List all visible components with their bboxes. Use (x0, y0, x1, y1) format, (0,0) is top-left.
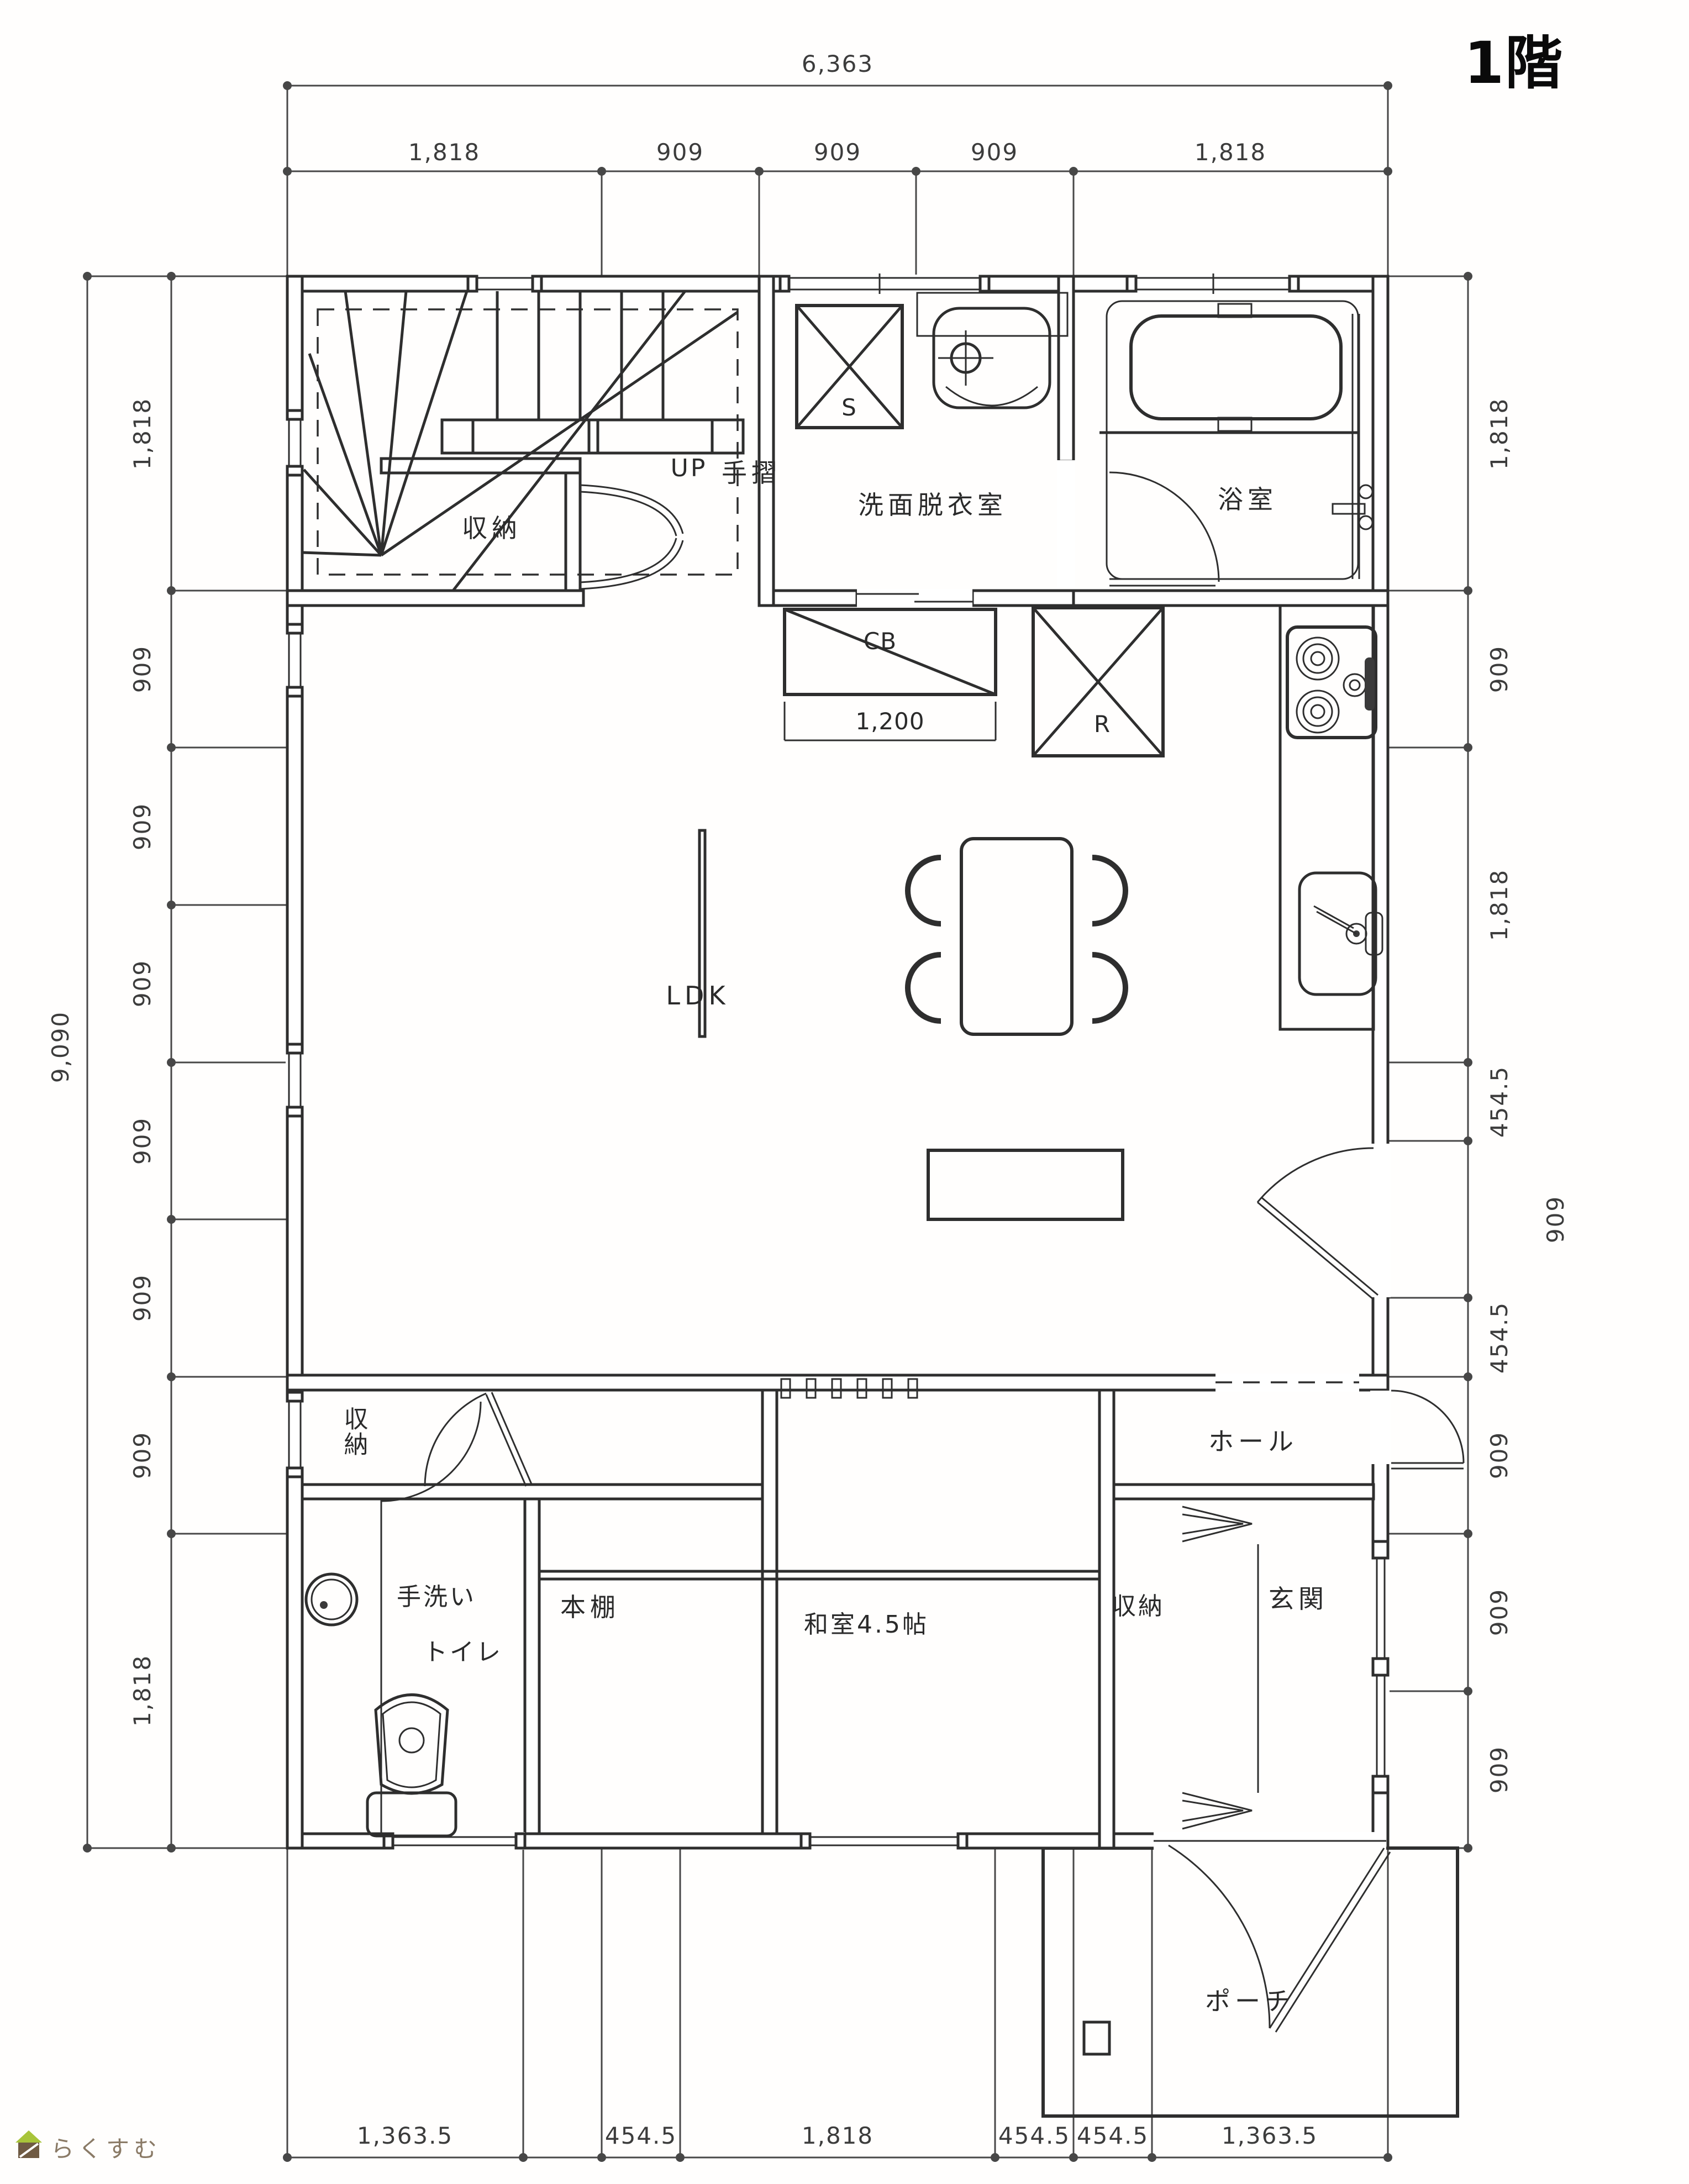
washroom-fixtures (797, 293, 1067, 428)
label-hand-wash: 手洗い (397, 1583, 476, 1611)
upper-floor-outline (318, 309, 738, 575)
toilet-area (306, 1392, 532, 1836)
dim-right-8: 909 (1486, 1588, 1513, 1636)
dim-left-3: 909 (129, 803, 156, 850)
hall-east-door (1391, 1391, 1464, 1469)
dim-left-4: 909 (129, 960, 156, 1007)
dim-bottom-5: 454.5 (998, 2122, 1070, 2149)
washitsu-area (539, 1379, 1099, 1579)
dim-top-total: 6,363 (802, 50, 874, 77)
label-counter-width: 1,200 (855, 708, 924, 735)
dimension-chain-top: 6,363 1,818 909 909 909 1,818 (283, 50, 1392, 276)
floor-title: 1階 (1464, 29, 1564, 97)
dim-left-5: 909 (129, 1117, 156, 1165)
dim-top-3: 909 (814, 139, 861, 166)
dim-top-5: 1,818 (1195, 139, 1266, 166)
dim-left-8: 1,818 (129, 1655, 156, 1727)
dining-table (961, 839, 1072, 1034)
dim-top-2: 909 (656, 139, 704, 166)
dim-bottom-4: 1,818 (802, 2122, 874, 2149)
bathroom-fixtures (1099, 301, 1372, 586)
dim-top-4: 909 (971, 139, 1018, 166)
room-label-washroom: 洗面脱衣室 (858, 490, 1007, 520)
dim-right-1: 1,818 (1486, 398, 1513, 470)
dim-left-total: 9,090 (47, 1011, 74, 1083)
ldk-east-door (1257, 1148, 1378, 1299)
entrance-closet-doors (1182, 1507, 1258, 1829)
chair (1092, 955, 1125, 1021)
vanity-counter (917, 293, 1067, 336)
chair (908, 857, 941, 924)
dim-left-1: 1,818 (129, 398, 156, 470)
dim-right-9: 909 (1486, 1746, 1513, 1793)
low-table (928, 1150, 1123, 1219)
room-label-hall: ホール (1208, 1427, 1298, 1456)
dim-right-2: 909 (1486, 645, 1513, 693)
toilet-door-arc (425, 1393, 486, 1486)
dimension-chain-left: 9,090 1,818 909 909 909 909 909 909 1,81… (47, 272, 287, 1853)
room-label-vestibule-storage: 収納 (340, 1406, 368, 1457)
porch-post (1084, 2022, 1109, 2054)
dim-right-5: 909 (1542, 1196, 1569, 1243)
dim-bottom-7: 1,363.5 (1222, 2122, 1318, 2149)
logo-roof-icon (15, 2130, 42, 2143)
dim-right-6: 454.5 (1486, 1302, 1513, 1373)
dim-bottom-6: 454.5 (1077, 2122, 1149, 2149)
room-label-bathroom: 浴室 (1218, 485, 1277, 514)
label-fridge: R (1094, 711, 1111, 738)
dim-left-6: 909 (129, 1274, 156, 1322)
room-label-entrance-storage: 収納 (1112, 1592, 1165, 1620)
porch-outline (1043, 1848, 1458, 2116)
dim-left-2: 909 (129, 645, 156, 693)
dim-right-7: 909 (1486, 1432, 1513, 1479)
dim-right-4: 454.5 (1486, 1066, 1513, 1138)
logo-brand-text: らくすむ (51, 2135, 161, 2162)
chair (1092, 857, 1125, 924)
dim-bottom-1: 1,363.5 (357, 2122, 453, 2149)
room-label-stair-storage: 収納 (462, 513, 522, 543)
kitchen (785, 606, 1382, 1029)
hand-wash-basin (306, 1574, 357, 1625)
chair (908, 955, 941, 1021)
dim-bottom-3: 454.5 (605, 2122, 677, 2149)
room-label-entrance: 玄関 (1269, 1584, 1328, 1614)
dim-top-1: 1,818 (408, 139, 480, 166)
bath-door-arc (1109, 472, 1219, 582)
dining-area (699, 830, 1125, 1219)
room-label-toilet: トイレ (423, 1638, 503, 1666)
label-bookshelf: 本棚 (560, 1592, 620, 1622)
room-label-porch: ポーチ (1205, 1986, 1295, 2016)
watermark-logo: らくすむ (15, 2130, 161, 2162)
dim-left-7: 909 (129, 1432, 156, 1479)
label-up: UP (671, 454, 708, 482)
kitchen-sink (1299, 873, 1376, 994)
label-washer: S (841, 394, 857, 421)
dim-right-3: 1,818 (1486, 869, 1513, 941)
dimension-chain-right: 1,818 909 1,818 454.5 909 454.5 909 909 … (1388, 272, 1569, 1853)
floor-plan-page: 6,363 1,818 909 909 909 1,818 9,090 1,81… (0, 0, 1689, 2184)
label-counter-cb: CB (864, 628, 897, 655)
bathtub (1131, 316, 1341, 419)
room-label-washitsu: 和室4.5帖 (804, 1611, 929, 1639)
room-label-ldk: LDK (666, 981, 729, 1011)
handrail-wall (442, 420, 743, 453)
label-handrail: 手摺 (722, 458, 781, 488)
staircase (302, 291, 743, 591)
